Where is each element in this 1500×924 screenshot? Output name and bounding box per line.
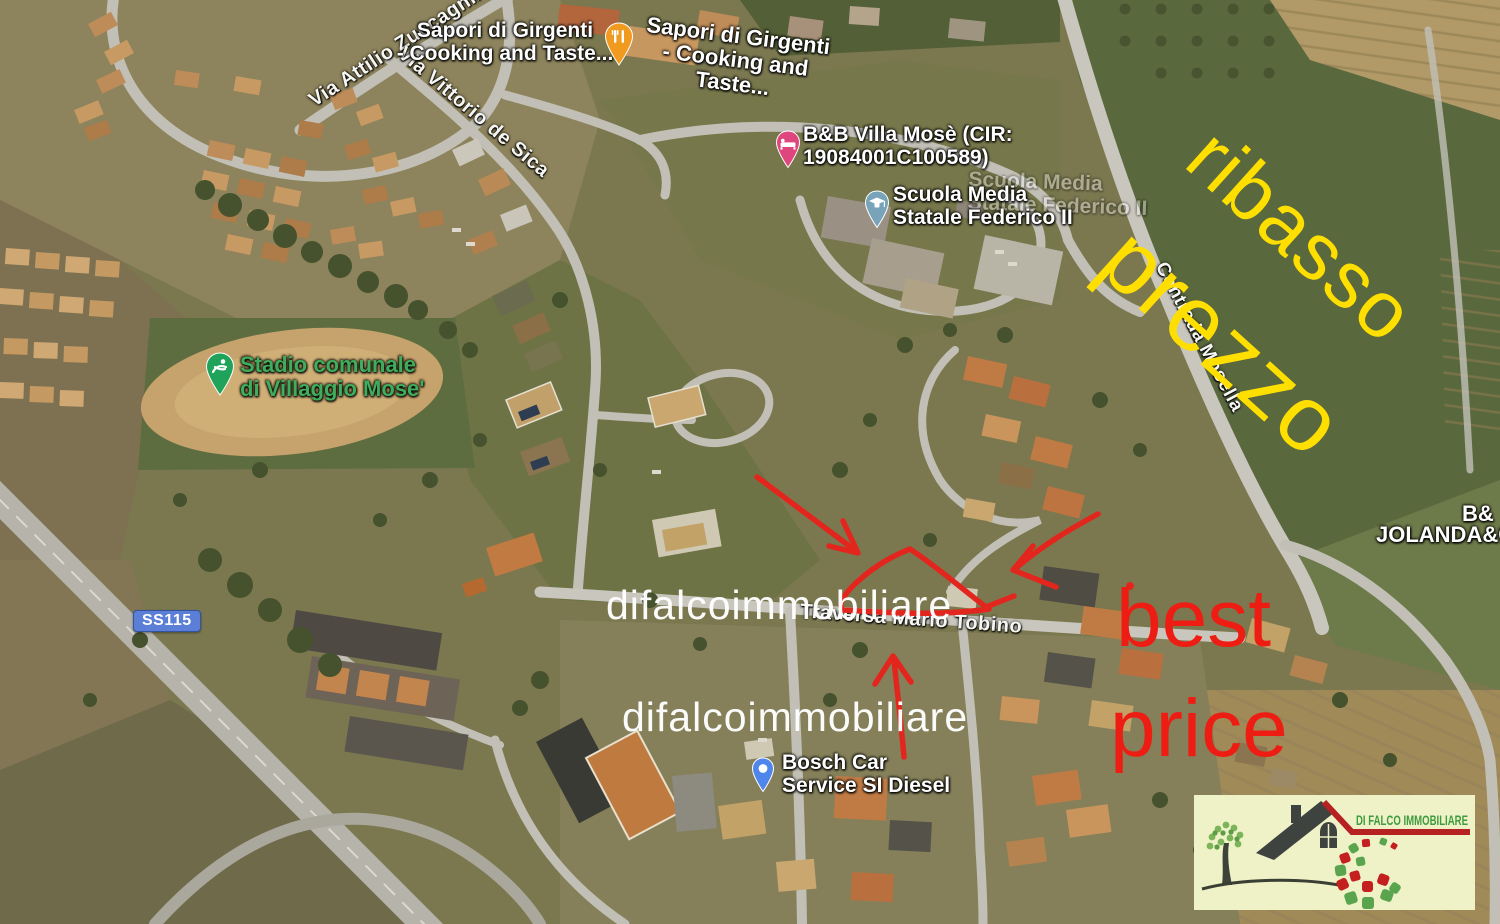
school-pin-icon[interactable]	[864, 190, 890, 230]
listing-image: Via Attilio Zuccagnini Via Vittorio de S…	[0, 0, 1500, 924]
poi-label-scuola[interactable]: Scuola Media Statale Federico II	[893, 184, 1073, 229]
watermark-difalco-2: difalcoimmobiliare	[622, 694, 968, 741]
stadium-pin-icon[interactable]	[205, 352, 235, 398]
best-price-word2: price	[1110, 682, 1288, 776]
restaurant-pin-icon[interactable]	[604, 22, 634, 68]
logo-brand-text: DI FALCO IMMOBILIARE	[1356, 812, 1468, 828]
road-badge-ss115: SS115	[133, 610, 201, 632]
satellite-imagery	[0, 0, 1500, 924]
poi-label-sapori-left[interactable]: Sapori di Girgenti - Cooking and Taste..…	[395, 20, 615, 65]
poi-label-stadio[interactable]: Stadio comunale di Villaggio Mose'	[240, 353, 425, 401]
bosch-pin-icon[interactable]	[751, 757, 775, 794]
bnb-pin-icon[interactable]	[775, 130, 801, 170]
difalco-logo: DI FALCO IMMOBILIARE	[1194, 795, 1475, 910]
poi-label-jolanda-line2[interactable]: JOLANDA&CA	[1376, 523, 1500, 547]
poi-label-bosch[interactable]: Bosch Car Service SI Diesel	[782, 752, 950, 797]
best-price-word1: best	[1116, 572, 1271, 666]
watermark-difalco-1: difalcoimmobiliare	[606, 582, 952, 629]
poi-label-villa-mose[interactable]: B&B Villa Mosè (CIR: 19084001C100589)	[803, 124, 1013, 169]
